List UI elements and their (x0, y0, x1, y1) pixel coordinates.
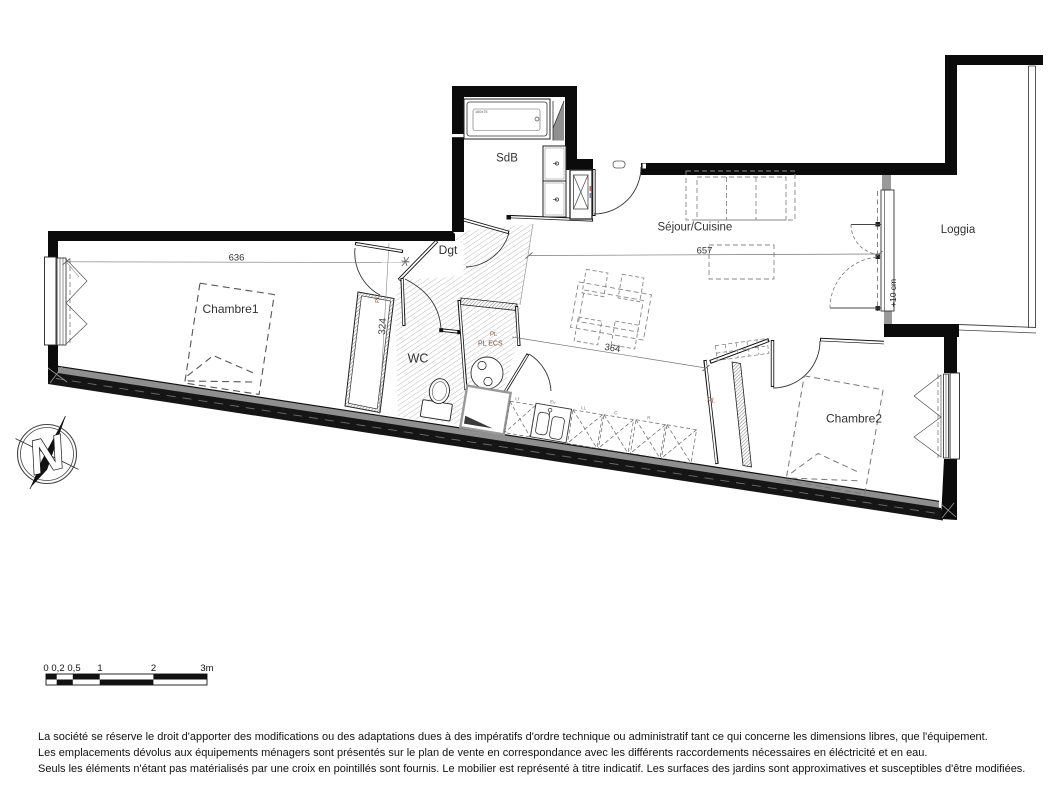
svg-text:Chambre2: Chambre2 (826, 412, 882, 426)
svg-text:324: 324 (377, 317, 389, 335)
svg-text:SdB: SdB (496, 153, 518, 165)
svg-text:2: 2 (151, 663, 156, 674)
svg-text:Les emplacements dévolus aux é: Les emplacements dévolus aux équipements… (38, 747, 927, 759)
svg-text:Pt.: Pt. (375, 295, 382, 303)
svg-text:Pt.: Pt. (490, 332, 498, 338)
svg-text:Séjour/Cuisine: Séjour/Cuisine (658, 222, 733, 234)
svg-text:636: 636 (229, 253, 245, 264)
svg-text:Chambre1: Chambre1 (202, 302, 258, 316)
svg-text:WC: WC (408, 352, 429, 366)
svg-text:657: 657 (697, 246, 713, 257)
svg-text:PL ECS: PL ECS (478, 341, 503, 348)
svg-text:Pl.: Pl. (707, 397, 716, 405)
svg-text:0: 0 (43, 663, 48, 674)
svg-text:0,5: 0,5 (67, 663, 80, 674)
svg-text:La société se réserve le droit: La société se réserve le droit d'apporte… (38, 731, 988, 743)
svg-text:Seuls les éléments n'étant pas: Seuls les éléments n'étant pas matériali… (38, 763, 1025, 775)
svg-text:0,2: 0,2 (51, 663, 64, 674)
svg-text:3m: 3m (200, 663, 213, 674)
svg-text:Dgt: Dgt (439, 243, 458, 257)
svg-text:1: 1 (97, 663, 102, 674)
svg-text:Loggia: Loggia (941, 224, 976, 236)
svg-text:160x75: 160x75 (475, 110, 487, 114)
svg-text:+10 cm: +10 cm (888, 279, 898, 307)
